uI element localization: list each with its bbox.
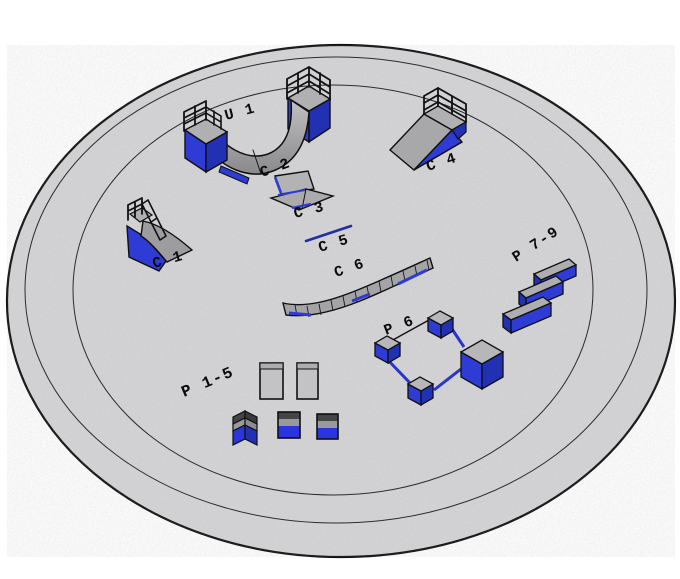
skatepark-render: U 1 C 1 C 2 C 3 C 4 C 5 C 6 P 1-5 P 6 P … xyxy=(0,0,680,579)
p15-box-c-gray-band xyxy=(317,421,338,428)
c6-blue-edge-left xyxy=(289,313,311,315)
p15-pad-1-top-band xyxy=(260,363,283,369)
p15-box-c xyxy=(317,414,338,439)
skatepark-canvas: U 1 C 1 C 2 C 3 C 4 C 5 C 6 P 1-5 P 6 P … xyxy=(0,0,680,579)
p15-box-b-gray-band xyxy=(278,419,300,426)
p15-box-b-blue-face xyxy=(278,426,300,438)
p15-box-c-blue-face xyxy=(317,428,338,439)
p15-pad-2-top-band xyxy=(297,363,318,369)
p15-box-b-dark-band xyxy=(278,412,300,419)
p15-box-c-dark-band xyxy=(317,414,338,421)
p15-box-b xyxy=(278,412,300,438)
